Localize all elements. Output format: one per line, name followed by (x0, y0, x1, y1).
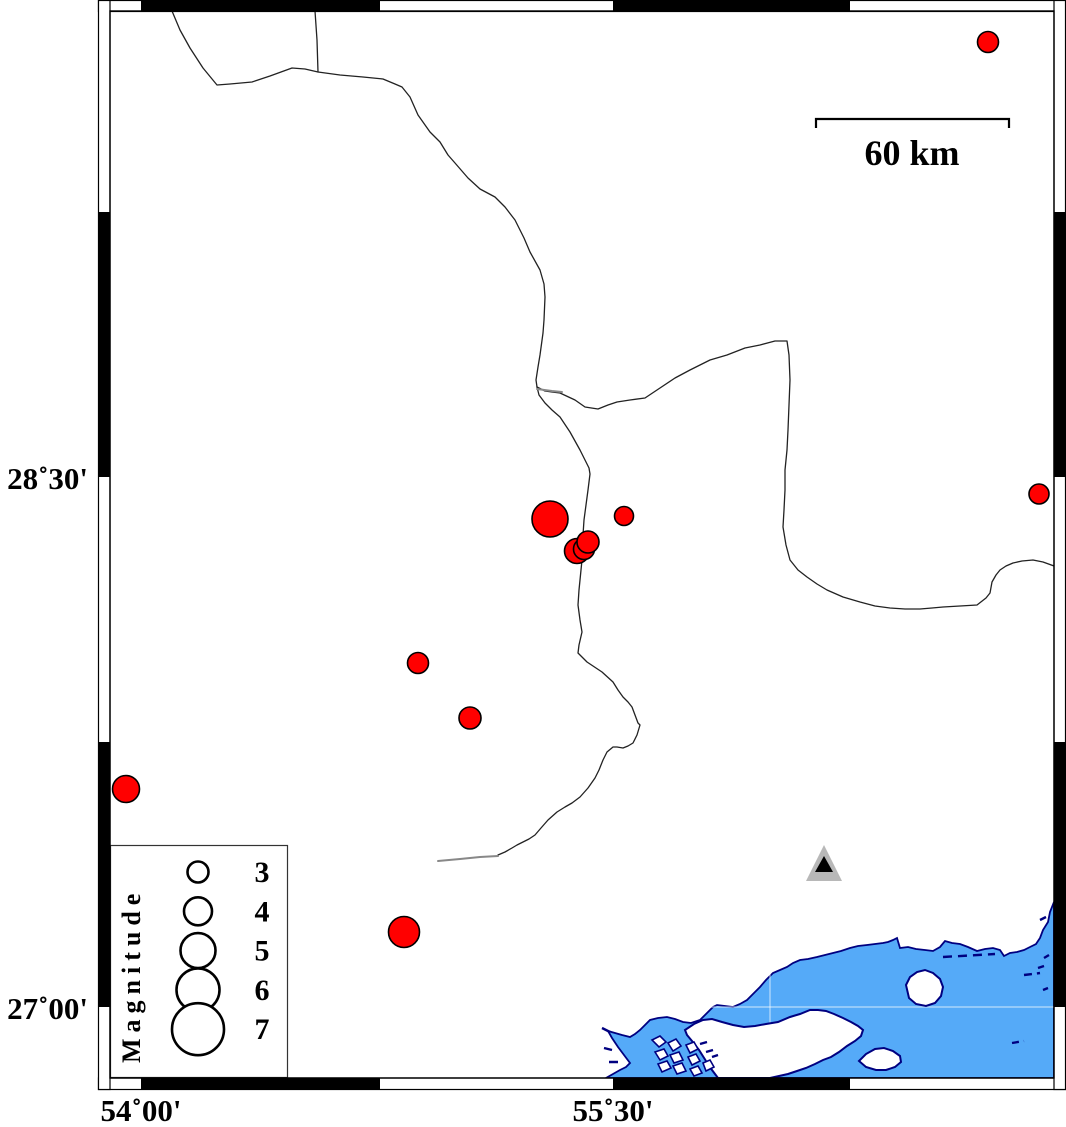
legend-label-mag-3: 3 (255, 856, 270, 889)
earthquake-marker (459, 707, 481, 729)
map-svg: 60 km Magnitude 34567 (0, 0, 1066, 1127)
lon-label-55-30: 55˚30' (573, 1093, 654, 1127)
earthquake-marker (113, 776, 140, 803)
earthquake-marker (978, 32, 999, 53)
earthquake-marker (389, 917, 420, 948)
earthquake-marker (577, 531, 599, 553)
legend-label-mag-6: 6 (255, 974, 270, 1007)
legend-label-mag-7: 7 (255, 1013, 270, 1046)
legend-circle-mag-7 (172, 1003, 224, 1055)
lat-label-28-30: 28˚30' (7, 461, 88, 496)
legend-label-mag-4: 4 (255, 895, 270, 928)
earthquake-marker (1029, 484, 1049, 504)
scale-bar-label: 60 km (864, 133, 959, 173)
magnitude-legend: Magnitude 34567 (111, 846, 288, 1078)
earthquake-marker (532, 501, 568, 537)
lat-label-27-00: 27˚00' (7, 991, 88, 1026)
legend-label-mag-5: 5 (255, 935, 270, 968)
legend-circle-mag-5 (181, 933, 216, 968)
seismicity-map: 60 km Magnitude 34567 (0, 0, 1066, 1127)
legend-title: Magnitude (117, 888, 146, 1063)
legend-circle-mag-4 (184, 897, 212, 925)
earthquake-marker (408, 653, 429, 674)
lon-label-54-00: 54˚00' (101, 1093, 182, 1127)
earthquake-marker (615, 507, 634, 526)
legend-circle-mag-3 (188, 862, 209, 883)
